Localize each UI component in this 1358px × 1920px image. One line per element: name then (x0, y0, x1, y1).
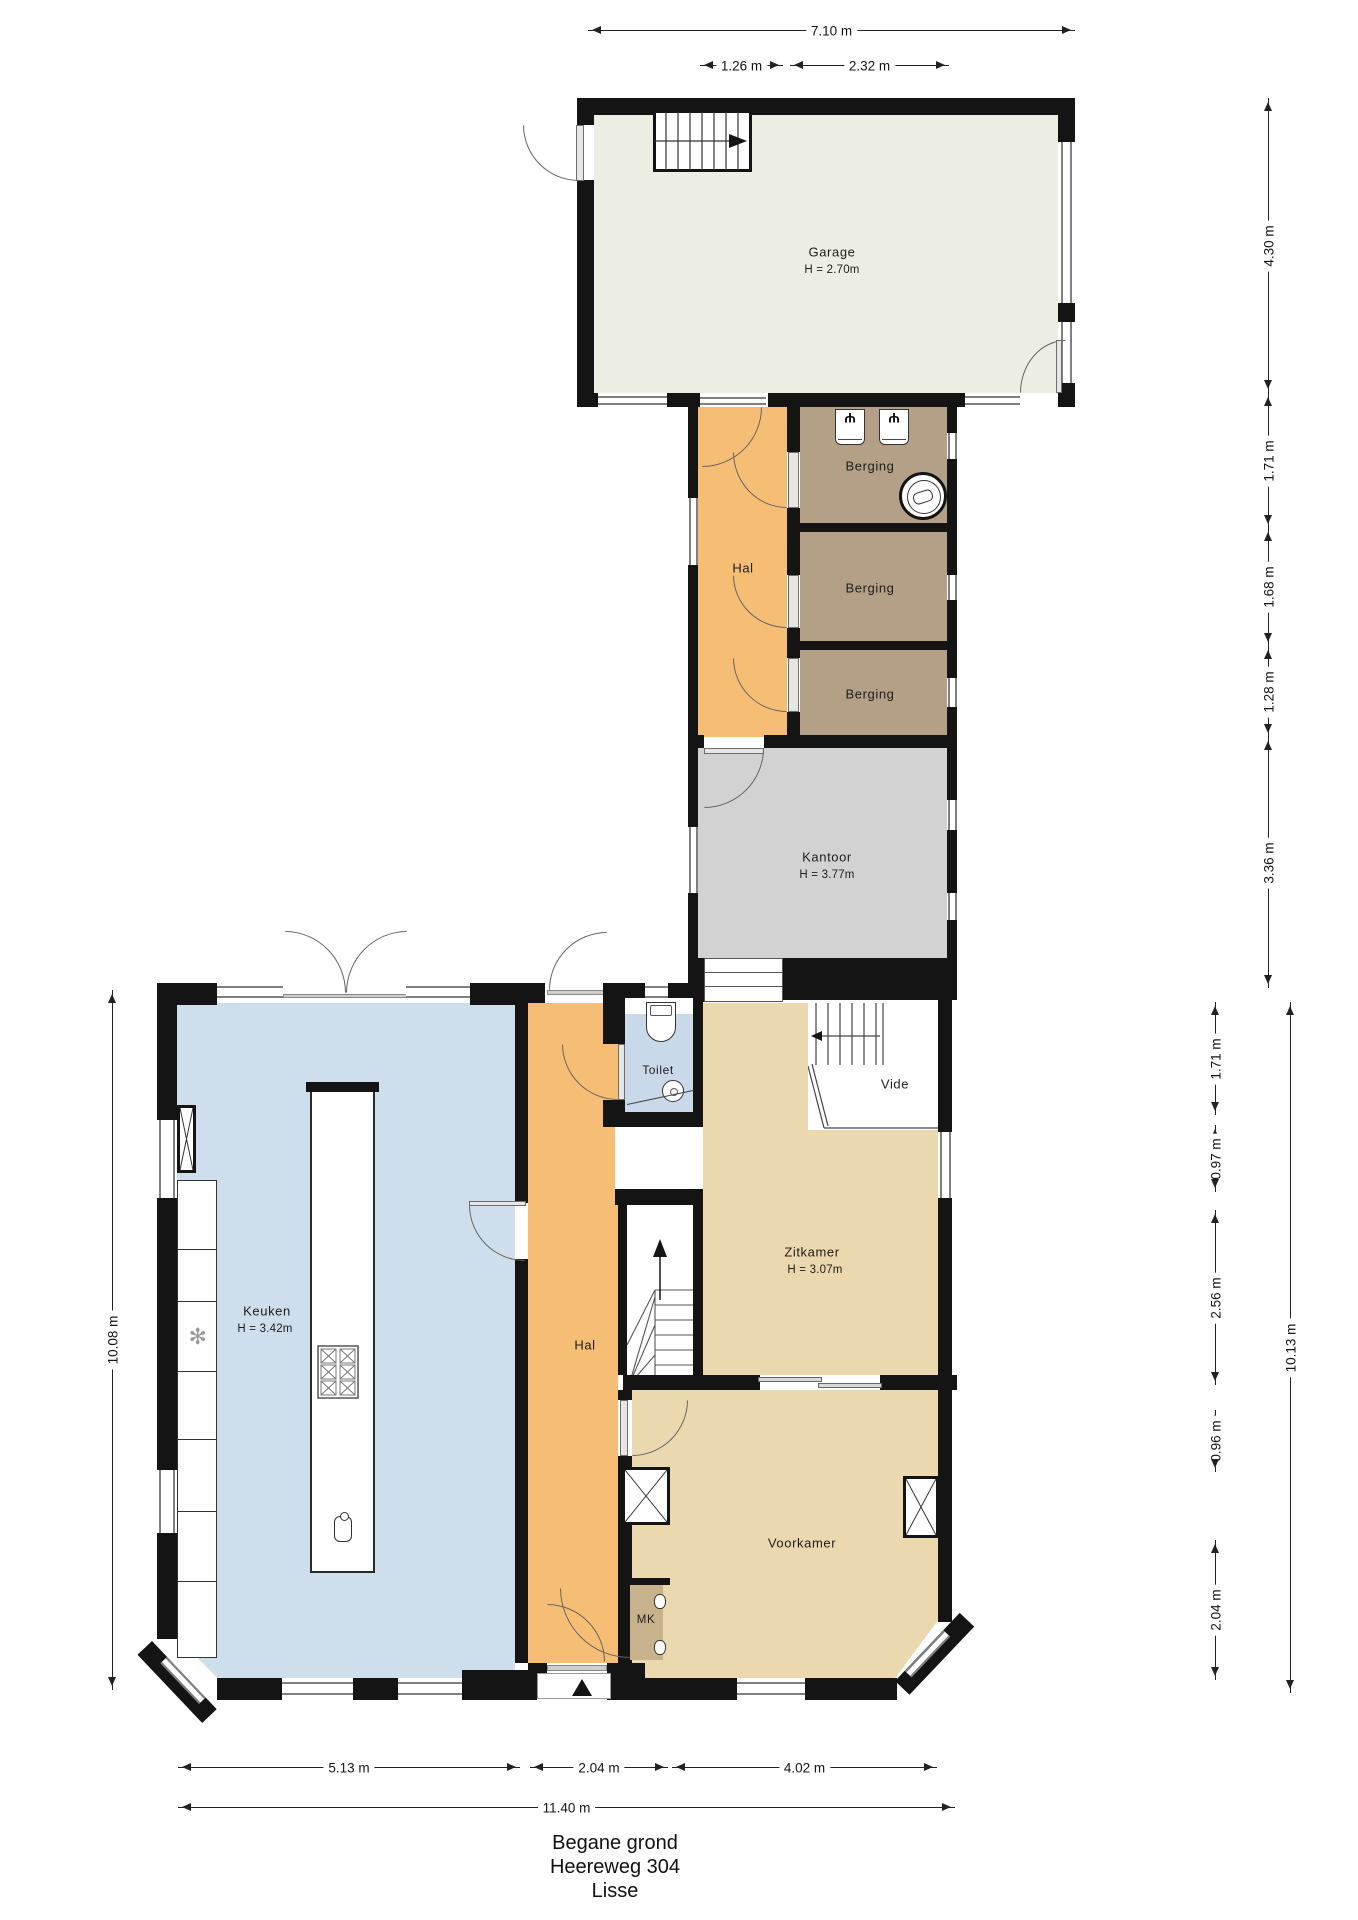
room-label: Berging (845, 459, 894, 474)
window (948, 678, 957, 707)
dim-top-hal: 1.26 m (700, 65, 783, 66)
dim-label: 4.02 m (779, 1761, 830, 1776)
window (159, 1470, 175, 1533)
wall (667, 393, 700, 407)
wall (618, 1205, 627, 1375)
door-leaf (618, 1044, 625, 1100)
wall (603, 1112, 703, 1127)
wall (1058, 303, 1075, 322)
floorplan-begane-grond: Garage H = 2.70m Hal Ψ Ψ Berging Berging… (0, 0, 1358, 1920)
wall (607, 1663, 645, 1700)
dim-label: 5.13 m (323, 1761, 374, 1776)
door-arc (346, 931, 407, 993)
room-vide (808, 1000, 938, 1130)
window (282, 1682, 353, 1695)
door-leaf (620, 1400, 628, 1456)
wall (470, 983, 545, 1005)
window (689, 827, 698, 893)
dim-right-zit2: 0.97 m (1215, 1125, 1216, 1192)
window (645, 986, 668, 998)
wall (157, 983, 217, 1005)
dim-label: 11.40 m (538, 1801, 596, 1816)
wall (688, 565, 698, 737)
dim-label: 3.36 m (1262, 837, 1277, 888)
dim-bottom-total: 11.40 m (178, 1807, 955, 1808)
wall (783, 978, 957, 1000)
plan-title-floor: Begane grond (552, 1832, 678, 1855)
dim-label: 2.04 m (1209, 1584, 1224, 1635)
wall (693, 983, 703, 1127)
dim-right-berging3: 1.28 m (1268, 646, 1269, 737)
door-arc (523, 125, 579, 181)
door-sill (547, 990, 605, 995)
dim-bottom-voorkamer: 4.02 m (672, 1767, 937, 1768)
wall (217, 1678, 282, 1700)
window (965, 396, 1020, 405)
dim-label: 0.96 m (1209, 1415, 1224, 1466)
dim-label: 2.04 m (573, 1761, 624, 1776)
room-height-label: H = 3.42m (237, 1323, 292, 1335)
dim-right-total: 10.13 m (1290, 1002, 1291, 1693)
room-label: Berging (845, 581, 894, 596)
wall (938, 1198, 952, 1390)
sliding-door-leaf (758, 1377, 822, 1382)
room-label: Vide (881, 1077, 909, 1092)
wall (688, 407, 698, 498)
boiler-icon (899, 472, 947, 520)
wall (515, 1259, 528, 1663)
window (406, 986, 470, 998)
dim-top-total: 7.10 m (588, 30, 1075, 31)
dim-label: 10.08 m (106, 1311, 121, 1370)
room-voorkamer (632, 1390, 938, 1678)
dim-label: 2.32 m (844, 59, 895, 74)
window (1061, 142, 1072, 303)
wall (618, 1390, 632, 1400)
kitchen-island (310, 1086, 375, 1573)
window (598, 396, 667, 405)
dim-bottom-keuken: 5.13 m (178, 1767, 520, 1768)
wall (693, 1205, 703, 1389)
dim-right-zit5: 2.04 m (1215, 1540, 1216, 1680)
wall (880, 1375, 957, 1390)
wall (764, 735, 957, 748)
dim-label: 10.13 m (1284, 1318, 1299, 1377)
room-height-label: H = 2.70m (804, 264, 859, 276)
toilet-bowl-icon (646, 1002, 676, 1042)
meter-fixture (654, 1594, 666, 1609)
dim-right-berging2: 1.68 m (1268, 528, 1269, 646)
meter-fixture (654, 1640, 666, 1655)
dim-right-zit3: 2.56 m (1215, 1210, 1216, 1385)
plan-title-street: Heereweg 304 (550, 1856, 680, 1879)
wall (947, 407, 957, 433)
wall (947, 600, 957, 678)
wall (800, 641, 947, 650)
window (689, 498, 698, 565)
dim-label: 4.30 m (1262, 220, 1277, 271)
dim-label: 7.10 m (806, 24, 857, 39)
tap-icon: Ψ (844, 410, 855, 426)
room-label: Kantoor (802, 850, 852, 865)
wall (787, 407, 800, 452)
door-arc (285, 931, 346, 993)
wall (1062, 393, 1075, 407)
window (398, 1682, 462, 1695)
door-leaf (788, 658, 799, 712)
wall (787, 628, 800, 658)
wall (1058, 98, 1075, 142)
dim-label: 1.68 m (1262, 561, 1277, 612)
wall (783, 958, 957, 978)
wall (577, 393, 598, 407)
window (948, 433, 957, 459)
window (159, 1120, 175, 1198)
dim-label: 0.97 m (1209, 1133, 1224, 1184)
wall (688, 748, 698, 827)
dim-label: 2.56 m (1209, 1272, 1224, 1323)
dim-right-berging1: 1.71 m (1268, 393, 1269, 528)
sink-icon (334, 1516, 352, 1542)
door-leaf (1056, 340, 1062, 393)
entrance-arrow (572, 1679, 592, 1696)
dim-top-berging: 2.32 m (790, 65, 949, 66)
door-sill (547, 1665, 607, 1671)
wall (947, 920, 957, 960)
window (737, 1682, 805, 1695)
dim-right-zit1: 1.71 m (1215, 1002, 1216, 1115)
window (700, 397, 766, 405)
dim-left-total: 10.08 m (112, 990, 113, 1690)
dim-bottom-hal: 2.04 m (530, 1767, 668, 1768)
stove-icon (317, 1345, 359, 1399)
wall (157, 1005, 177, 1120)
passage-floor (615, 1127, 703, 1189)
door-arc (549, 932, 607, 990)
wall (577, 180, 594, 393)
room-label: Toilet (642, 1063, 674, 1077)
kitchen-counter: ✻ (177, 1180, 217, 1658)
washer-fixture: Ψ (879, 409, 909, 445)
freezer-snowflake-icon: ✻ (188, 1324, 207, 1350)
wall (938, 1390, 952, 1622)
dim-label: 1.71 m (1209, 1033, 1224, 1084)
wall (688, 893, 698, 960)
dim-right-garage: 4.30 m (1268, 98, 1269, 393)
room-label: Keuken (243, 1304, 291, 1319)
wall (938, 1000, 952, 1132)
steps-passage (704, 958, 783, 1002)
dim-label: 1.71 m (1262, 435, 1277, 486)
wall (577, 98, 1075, 115)
wall (947, 830, 957, 893)
door-leaf (788, 575, 799, 628)
duct-box (622, 1467, 670, 1525)
wall (643, 1678, 737, 1700)
duct-box (903, 1476, 939, 1538)
wall (787, 508, 800, 575)
room-label: Hal (574, 1338, 595, 1353)
wall (947, 748, 957, 800)
window (217, 986, 283, 998)
wall (306, 1082, 379, 1092)
wall (157, 1198, 177, 1470)
room-label: Hal (732, 561, 753, 576)
room-label: Zitkamer (784, 1245, 839, 1260)
room-label: MK (637, 1614, 655, 1626)
toilet-sink-icon (662, 1080, 684, 1102)
room-height-label: H = 3.07m (787, 1264, 842, 1276)
wall (688, 735, 704, 748)
wall (515, 1003, 528, 1203)
door-sill (283, 994, 407, 998)
duct-box (177, 1105, 196, 1173)
wall (462, 1670, 537, 1700)
dim-right-kantoor: 3.36 m (1268, 737, 1269, 988)
wall (625, 1578, 670, 1585)
stairs-garage (653, 110, 752, 172)
wall (623, 1375, 760, 1390)
wall (603, 983, 625, 1044)
wall (800, 523, 947, 532)
washer-fixture: Ψ (835, 409, 865, 445)
window (948, 800, 957, 830)
wall (805, 1678, 897, 1700)
window (948, 575, 957, 600)
window (948, 893, 957, 920)
dim-right-zit4: 0.96 m (1215, 1410, 1216, 1472)
wall (353, 1678, 398, 1700)
plan-title-city: Lisse (592, 1880, 639, 1903)
room-label: Garage (809, 245, 856, 260)
wall (615, 1189, 703, 1205)
tap-icon: Ψ (888, 410, 899, 426)
door-leaf (788, 452, 799, 508)
stairs-main (627, 1205, 693, 1388)
wall (577, 98, 594, 125)
room-height-label: H = 3.77m (799, 869, 854, 881)
wall (768, 393, 965, 407)
room-label: Berging (845, 687, 894, 702)
dim-label: 1.28 m (1262, 666, 1277, 717)
wall (157, 1533, 177, 1639)
wall (947, 459, 957, 575)
room-label: Voorkamer (768, 1536, 836, 1551)
dim-label: 1.26 m (716, 59, 767, 74)
window (940, 1132, 951, 1198)
